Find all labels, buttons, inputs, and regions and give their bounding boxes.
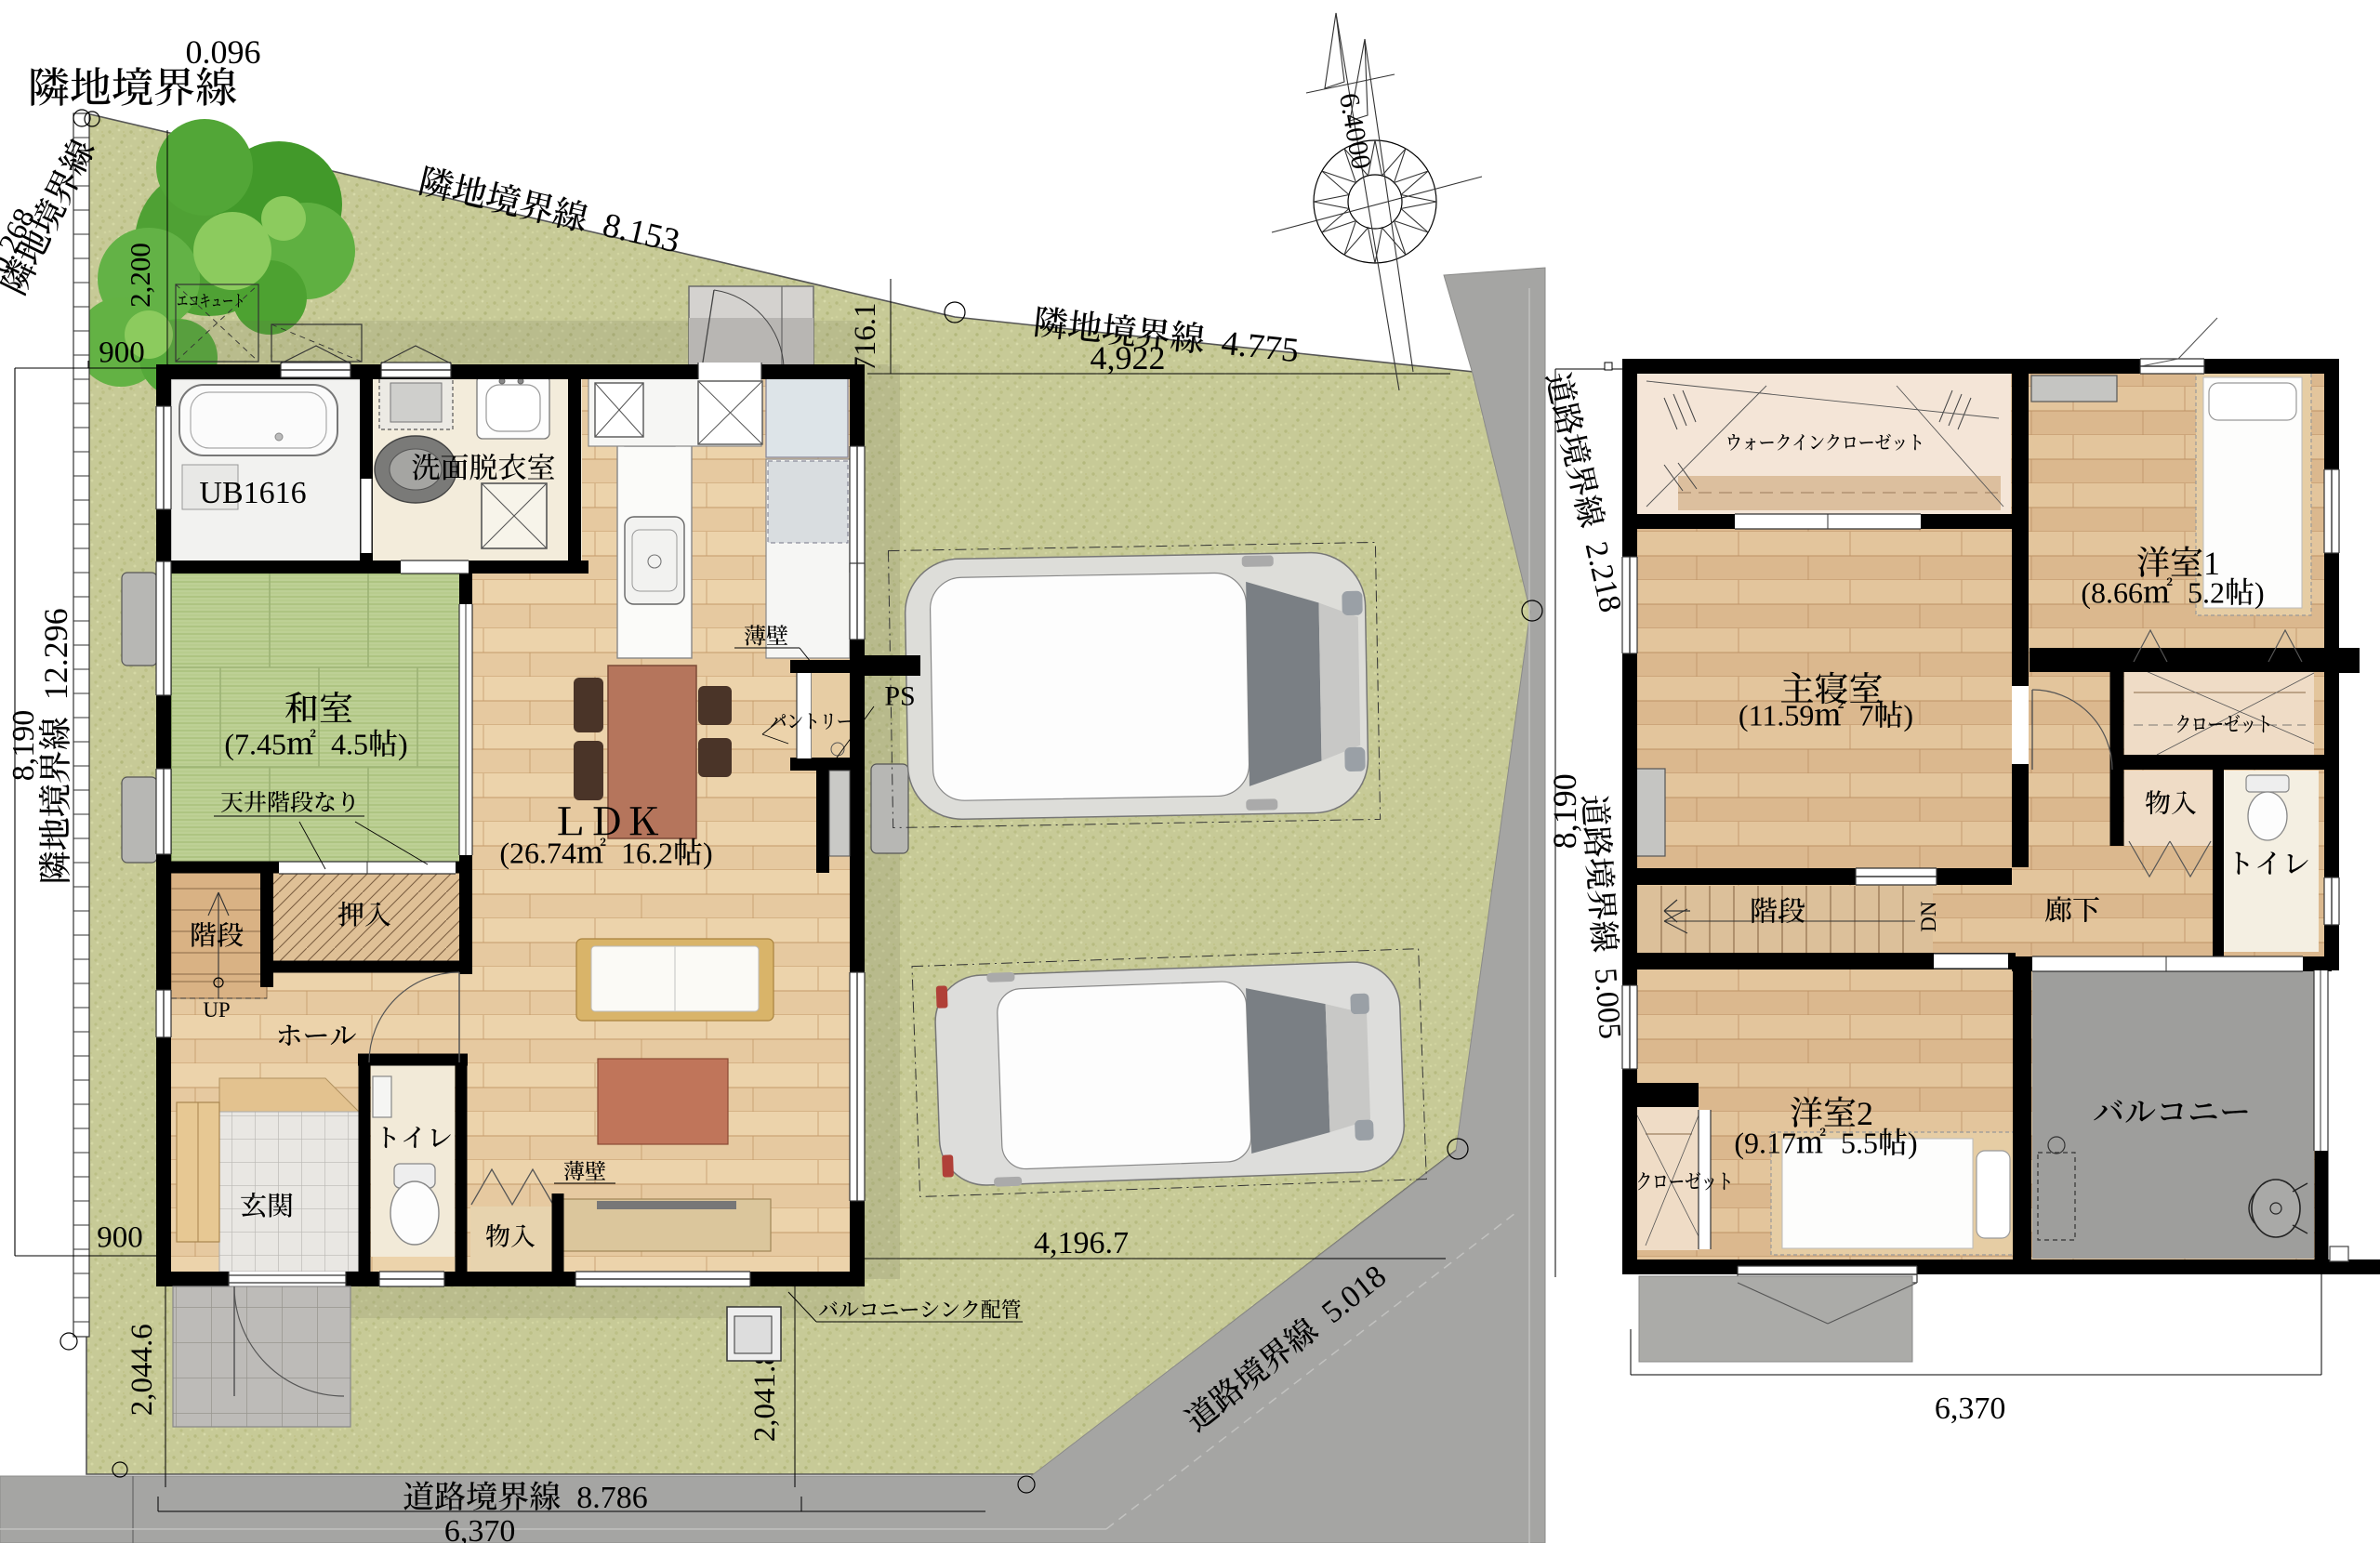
svg-text:PS: PS xyxy=(884,681,915,712)
svg-text:UB1616: UB1616 xyxy=(199,476,306,510)
svg-text:11.59: 11.59 xyxy=(1749,698,1815,732)
svg-text:2,044.6: 2,044.6 xyxy=(126,1324,159,1416)
svg-text:): ) xyxy=(703,836,713,869)
svg-text:(: ( xyxy=(224,727,234,760)
svg-text:(: ( xyxy=(2081,575,2091,609)
svg-text:): ) xyxy=(398,727,408,760)
svg-text:(: ( xyxy=(1739,698,1749,732)
svg-text:6,370: 6,370 xyxy=(1935,1391,2006,1426)
svg-text:8,190: 8,190 xyxy=(7,710,41,782)
svg-text:5.5: 5.5 xyxy=(1826,1126,1878,1159)
svg-text:8.66: 8.66 xyxy=(2091,575,2143,609)
svg-text:12.296: 12.296 xyxy=(37,608,74,717)
svg-text:900: 900 xyxy=(97,1221,143,1255)
svg-text:4,196.7: 4,196.7 xyxy=(1034,1226,1129,1260)
svg-text:UP: UP xyxy=(203,998,230,1022)
svg-text:DN: DN xyxy=(1917,901,1940,932)
svg-text:9.17: 9.17 xyxy=(1744,1126,1796,1159)
svg-text:26.74: 26.74 xyxy=(509,836,576,869)
svg-text:900: 900 xyxy=(99,336,145,370)
svg-text:5.005: 5.005 xyxy=(1587,951,1627,1040)
svg-text:16.2: 16.2 xyxy=(606,836,673,869)
svg-text:): ) xyxy=(1903,698,1913,732)
svg-text:): ) xyxy=(1908,1126,1918,1159)
svg-text:6,370: 6,370 xyxy=(444,1514,516,1543)
svg-text:2,041.8: 2,041.8 xyxy=(748,1350,782,1442)
svg-text:2,200: 2,200 xyxy=(124,243,156,308)
svg-text:5.2: 5.2 xyxy=(2173,575,2225,609)
svg-text:4.5: 4.5 xyxy=(316,727,368,760)
svg-text:(: ( xyxy=(499,836,509,869)
svg-text:8,190: 8,190 xyxy=(1546,773,1583,849)
svg-text:7: 7 xyxy=(1844,698,1873,732)
svg-text:7.45: 7.45 xyxy=(234,727,286,760)
svg-text:): ) xyxy=(2254,575,2265,609)
svg-text:0.096: 0.096 xyxy=(186,33,261,71)
svg-text:(: ( xyxy=(1734,1126,1744,1159)
svg-text:8.786: 8.786 xyxy=(561,1481,648,1515)
